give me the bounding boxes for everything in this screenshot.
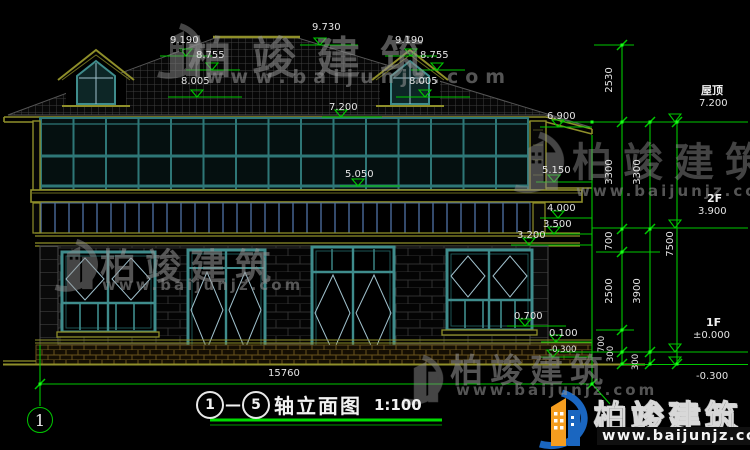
level-elev-ground: -0.300 xyxy=(696,372,728,382)
level-label-2f: 2F xyxy=(707,193,722,204)
dim-text: 7500 xyxy=(666,231,676,256)
watermark-url: www.baijunjz.com xyxy=(102,276,303,294)
dim-text: 300 xyxy=(607,346,616,362)
elevation-text: -0.300 xyxy=(549,346,576,355)
elevation-text: 8.005 xyxy=(181,77,210,87)
title-scale: 1:100 xyxy=(374,396,422,414)
axis-circle-start: 1 xyxy=(196,391,224,419)
elevation-text: 0.700 xyxy=(514,312,543,322)
dim-text-bottom: 15760 xyxy=(268,369,300,379)
elevation-text: 3.200 xyxy=(517,231,546,241)
elevation-text: 5.050 xyxy=(345,170,374,180)
axis-circle-end: 5 xyxy=(242,391,270,419)
watermark-url: www.baijunjz.com xyxy=(576,182,750,200)
elevation-text: 3.500 xyxy=(543,220,572,230)
brand-logo-url: www.baijunjz.com xyxy=(597,427,750,445)
level-label-1f: 1F xyxy=(706,317,721,328)
drawing-title: 1 — 5 轴立面图 1:100 xyxy=(196,390,422,419)
level-label-roof: 屋顶 xyxy=(701,85,723,96)
dim-text: 2500 xyxy=(605,278,615,303)
dim-text: 3300 xyxy=(633,159,643,184)
brand-logo-icon xyxy=(540,393,584,446)
french-window-1f xyxy=(312,247,394,355)
level-elev-roof: 7.200 xyxy=(699,99,728,109)
axis-bubble-1: 1 xyxy=(27,407,53,433)
dim-text: 3900 xyxy=(633,278,643,303)
window-1f-right xyxy=(442,250,537,335)
watermark-brand: 柏竣建筑 xyxy=(572,130,750,188)
axis-range-dash: — xyxy=(225,395,241,414)
elevation-text: 5.150 xyxy=(542,166,571,176)
title-text: 轴立面图 xyxy=(274,390,362,419)
dim-text: 3300 xyxy=(605,159,615,184)
elevation-text: 4.000 xyxy=(547,204,576,214)
cad-elevation-screenshot: 柏竣建筑 www.baijunjz.com 柏竣建筑 www.baijunjz.… xyxy=(0,0,750,450)
dim-text: 2530 xyxy=(605,67,615,92)
elevation-text: 9.190 xyxy=(170,36,199,46)
elevation-text: 9.190 xyxy=(395,36,424,46)
elevation-text: 0.100 xyxy=(549,329,578,339)
dim-text: 300 xyxy=(632,354,641,370)
watermark-url: www.baijunjz.com xyxy=(206,66,512,88)
level-elev-1f: ±0.000 xyxy=(693,331,730,341)
elevation-text: 6.900 xyxy=(547,112,576,122)
elevation-text: 8.005 xyxy=(409,77,438,87)
elevation-text: 7.200 xyxy=(329,103,358,113)
elevation-text: 8.755 xyxy=(196,51,225,61)
dim-text: 700 xyxy=(605,231,615,250)
elevation-text: 8.755 xyxy=(420,51,449,61)
elevation-text: 9.730 xyxy=(312,23,341,33)
level-elev-2f: 3.900 xyxy=(698,207,727,217)
